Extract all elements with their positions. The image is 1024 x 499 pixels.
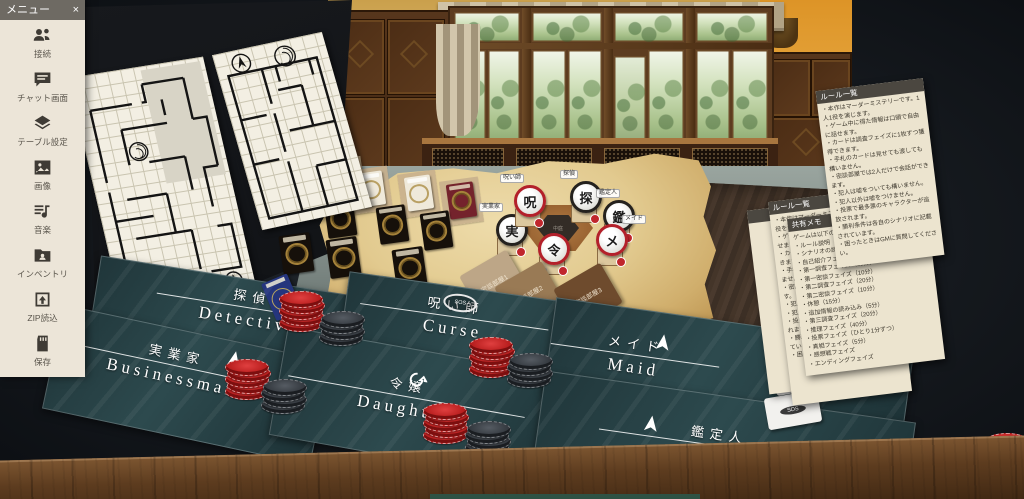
token-label: メイド	[622, 215, 646, 224]
room-backdrop	[328, 0, 852, 180]
menu-item-zip-load[interactable]: ZIP読込	[0, 284, 85, 328]
scenario-card-white[interactable]	[404, 174, 434, 211]
chip-stack-dark[interactable]	[320, 302, 364, 346]
menu-title: メニュー	[6, 0, 50, 20]
menu-item-music[interactable]: 音楽	[0, 196, 85, 240]
tabletop-stage: 中庭 実 実業家 呪 呪い師 探 探偵 鑑 鑑定人 メ メイド 令 令嬢 密談部…	[0, 0, 1024, 499]
counter-badge	[616, 257, 626, 267]
layers-icon	[32, 113, 53, 134]
inventory-icon	[32, 245, 53, 266]
investigation-card[interactable]	[420, 210, 454, 251]
menu-item-image[interactable]: 画像	[0, 152, 85, 196]
bay-windows	[450, 8, 772, 150]
card-zone-arrow-icon	[651, 330, 676, 355]
image-icon	[32, 157, 53, 178]
token-label: 呪い師	[500, 174, 524, 183]
token-daughter[interactable]: 令	[538, 233, 570, 265]
menu-item-save[interactable]: 保存	[0, 328, 85, 372]
chat-icon	[32, 69, 53, 90]
menu-item-table-settings[interactable]: テーブル設定	[0, 108, 85, 152]
chip-stack-dark[interactable]	[262, 370, 306, 414]
chip-stack-red[interactable]	[424, 400, 468, 444]
curtain	[436, 24, 480, 136]
menu-titlebar: メニュー ×	[0, 0, 85, 20]
panel-body: ・本作はマーダーミステリーです。1人1役を演じます。・ゲーム中に得た情報は口頭で…	[817, 91, 944, 262]
token-maid[interactable]: メ	[596, 224, 628, 256]
counter-badge	[534, 218, 544, 228]
close-icon[interactable]: ×	[73, 0, 79, 20]
courtyard-label: 中庭	[553, 225, 563, 232]
scenario-card-red[interactable]	[446, 181, 478, 219]
panel-rules-1[interactable]: ルール一覧 ・本作はマーダーミステリーです。1人1役を演じます。・ゲーム中に得た…	[816, 78, 945, 268]
menu-panel[interactable]: メニュー × 接続 チャット画面 テーブル設定 画像 音楽 インベントリ	[0, 0, 85, 377]
counter-badge	[558, 266, 568, 276]
card-zone-arrow-icon	[639, 411, 664, 436]
menu-item-inventory[interactable]: インベントリ	[0, 240, 85, 284]
people-icon	[32, 25, 53, 46]
music-icon	[32, 201, 53, 222]
investigation-card[interactable]	[278, 232, 314, 275]
refresh-icon	[404, 367, 429, 392]
token-label: 実業家	[479, 203, 503, 212]
menu-item-chat[interactable]: チャット画面	[0, 64, 85, 108]
counter-badge	[590, 214, 600, 224]
zip-icon	[32, 289, 53, 310]
menu-item-connect[interactable]: 接続	[0, 20, 85, 64]
board-edge-strip	[430, 494, 700, 499]
investigation-card[interactable]	[376, 204, 410, 245]
chip-stack-red[interactable]	[280, 288, 324, 332]
chip-stack-dark[interactable]	[508, 344, 552, 388]
token-curse[interactable]: 呪	[514, 185, 546, 217]
save-icon	[32, 333, 53, 354]
token-label: 探偵	[560, 170, 578, 179]
token-label: 鑑定人	[596, 189, 620, 198]
counter-badge	[516, 247, 526, 257]
